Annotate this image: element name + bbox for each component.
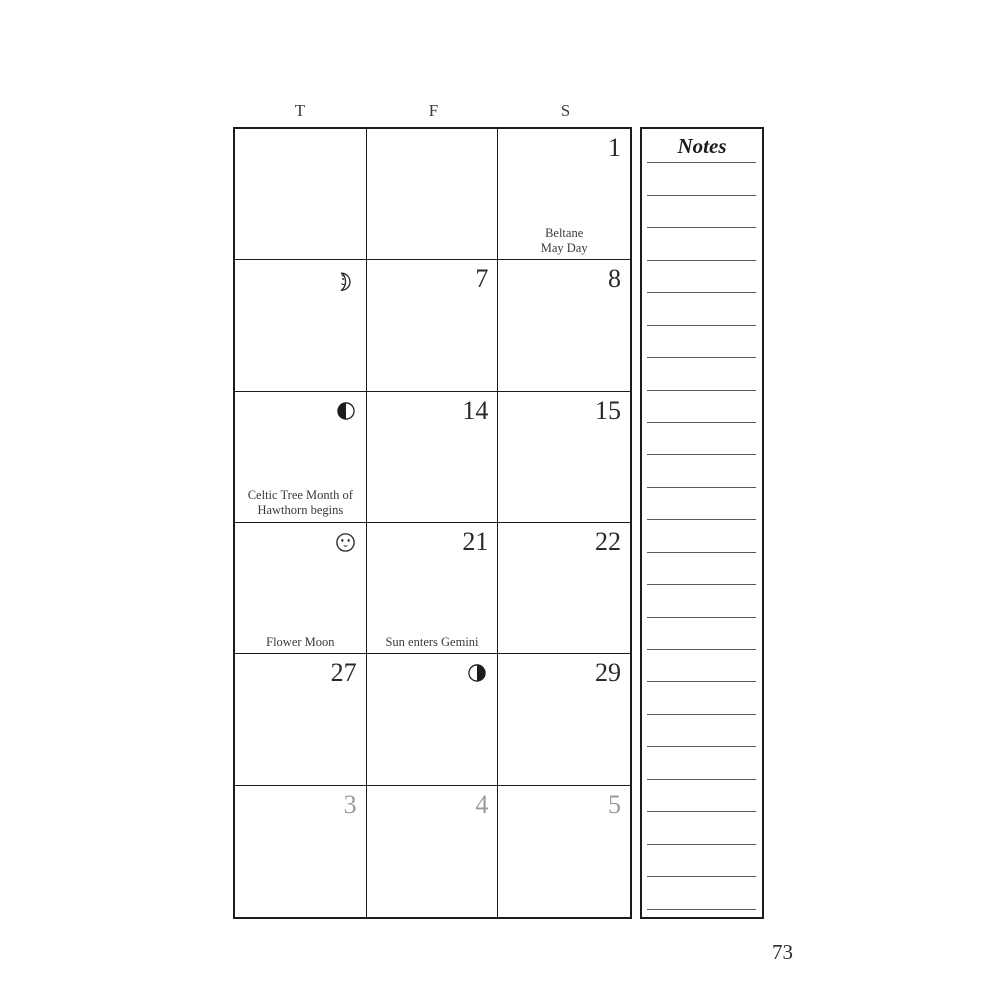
full-moon-with-face-icon	[334, 531, 357, 559]
weekday-label-thursday: T	[233, 101, 368, 121]
notes-lines	[647, 131, 756, 910]
note-line	[647, 326, 756, 358]
day-cell: 14	[367, 392, 499, 523]
note-line	[647, 812, 756, 844]
day-cell-next-month: 5	[498, 786, 630, 917]
day-cell: 7	[367, 260, 499, 391]
day-number: 3	[344, 790, 357, 819]
calendar-grid: 1 Beltane May Day 7	[233, 127, 632, 919]
day-cell-next-month: 4	[367, 786, 499, 917]
notes-panel: Notes	[640, 127, 764, 919]
note-line	[647, 358, 756, 390]
page-number: 73	[733, 940, 793, 965]
note-line	[647, 682, 756, 714]
note-line	[647, 553, 756, 585]
day-number: 29	[595, 658, 621, 687]
day-cell: Flower Moon	[235, 523, 367, 654]
day-cell: 8	[498, 260, 630, 391]
day-annotation: Sun enters Gemini	[369, 635, 496, 650]
weekday-label-saturday: S	[500, 101, 632, 121]
day-cell: 22	[498, 523, 630, 654]
day-number: 14	[462, 396, 488, 425]
note-line	[647, 455, 756, 487]
note-line	[647, 585, 756, 617]
note-line	[647, 196, 756, 228]
day-cell	[235, 260, 367, 391]
day-number: 21	[462, 527, 488, 556]
day-number: 7	[475, 264, 488, 293]
day-cell: 1 Beltane May Day	[498, 129, 630, 260]
note-line	[647, 780, 756, 812]
weekday-header-row: T F S	[233, 101, 632, 123]
note-line	[647, 845, 756, 877]
note-line	[647, 747, 756, 779]
notes-title: Notes	[642, 134, 762, 159]
day-number: 1	[608, 133, 621, 162]
day-number: 8	[608, 264, 621, 293]
day-cell	[367, 654, 499, 785]
fourth-quarter-moon-icon	[466, 662, 488, 689]
day-cell: 27	[235, 654, 367, 785]
day-cell: Celtic Tree Month of Hawthorn begins	[235, 392, 367, 523]
day-cell	[367, 129, 499, 260]
day-cell: 21 Sun enters Gemini	[367, 523, 499, 654]
day-cell: 15	[498, 392, 630, 523]
note-line	[647, 261, 756, 293]
day-number: 27	[331, 658, 357, 687]
day-annotation: Beltane May Day	[500, 226, 628, 256]
note-line	[647, 877, 756, 909]
day-number: 15	[595, 396, 621, 425]
note-line	[647, 423, 756, 455]
note-line	[647, 715, 756, 747]
note-line	[647, 391, 756, 423]
day-cell	[235, 129, 367, 260]
note-line	[647, 488, 756, 520]
weekday-label-friday: F	[368, 101, 500, 121]
note-line	[647, 618, 756, 650]
note-line	[647, 650, 756, 682]
day-number: 4	[475, 790, 488, 819]
day-number: 22	[595, 527, 621, 556]
note-line	[647, 163, 756, 195]
note-line	[647, 293, 756, 325]
day-cell-next-month: 3	[235, 786, 367, 917]
datebook-calendar-page: T F S 1 Beltane May Day	[0, 0, 1000, 1000]
day-cell: 29	[498, 654, 630, 785]
day-number: 5	[608, 790, 621, 819]
note-line	[647, 520, 756, 552]
note-line	[647, 228, 756, 260]
day-annotation: Flower Moon	[237, 635, 364, 650]
second-quarter-moon-icon	[335, 400, 357, 427]
day-annotation: Celtic Tree Month of Hawthorn begins	[237, 488, 364, 518]
new-moon-crescent-with-face-icon	[332, 268, 357, 300]
